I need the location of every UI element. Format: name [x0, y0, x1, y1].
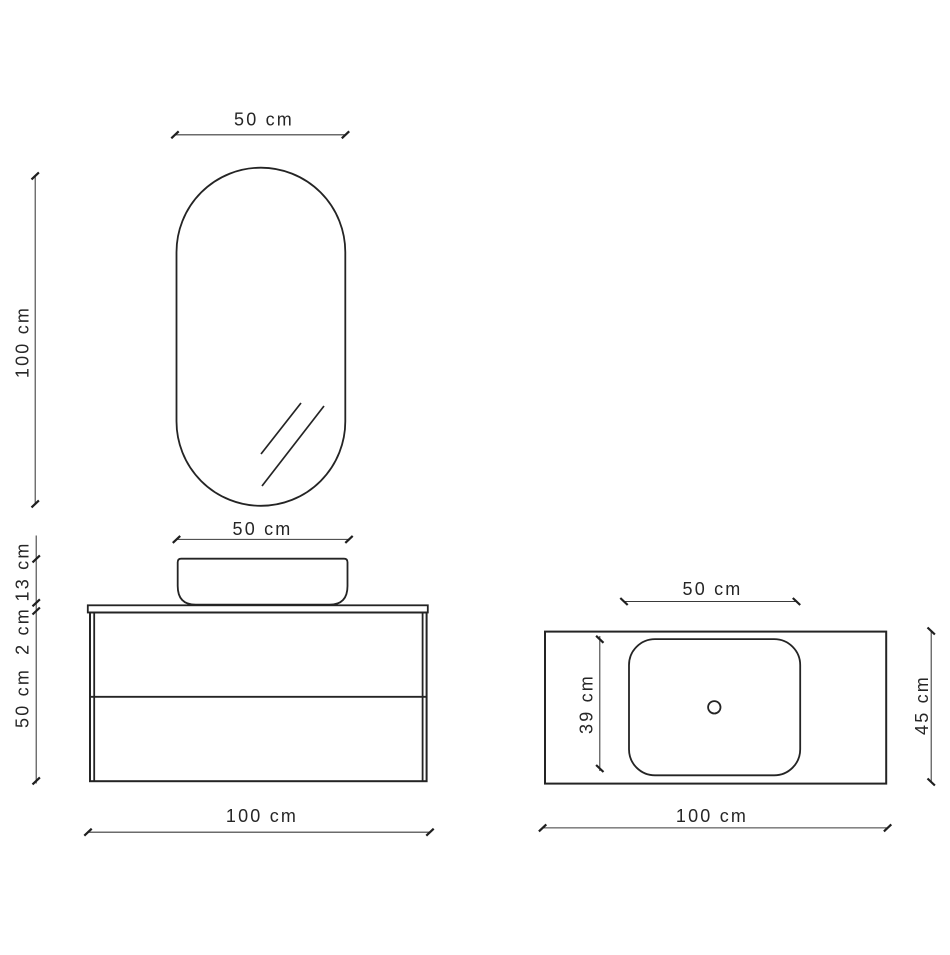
svg-text:50 cm: 50 cm [682, 579, 742, 599]
svg-text:100 cm: 100 cm [676, 806, 748, 826]
svg-text:45 cm: 45 cm [912, 675, 932, 735]
svg-text:50 cm: 50 cm [232, 519, 292, 539]
svg-text:50 cm: 50 cm [234, 110, 294, 130]
svg-text:39 cm: 39 cm [577, 674, 597, 734]
svg-text:13 cm: 13 cm [12, 541, 32, 601]
svg-text:2 cm: 2 cm [12, 607, 32, 655]
svg-text:100 cm: 100 cm [12, 306, 32, 378]
svg-text:100 cm: 100 cm [226, 806, 298, 826]
svg-text:50 cm: 50 cm [12, 668, 32, 728]
